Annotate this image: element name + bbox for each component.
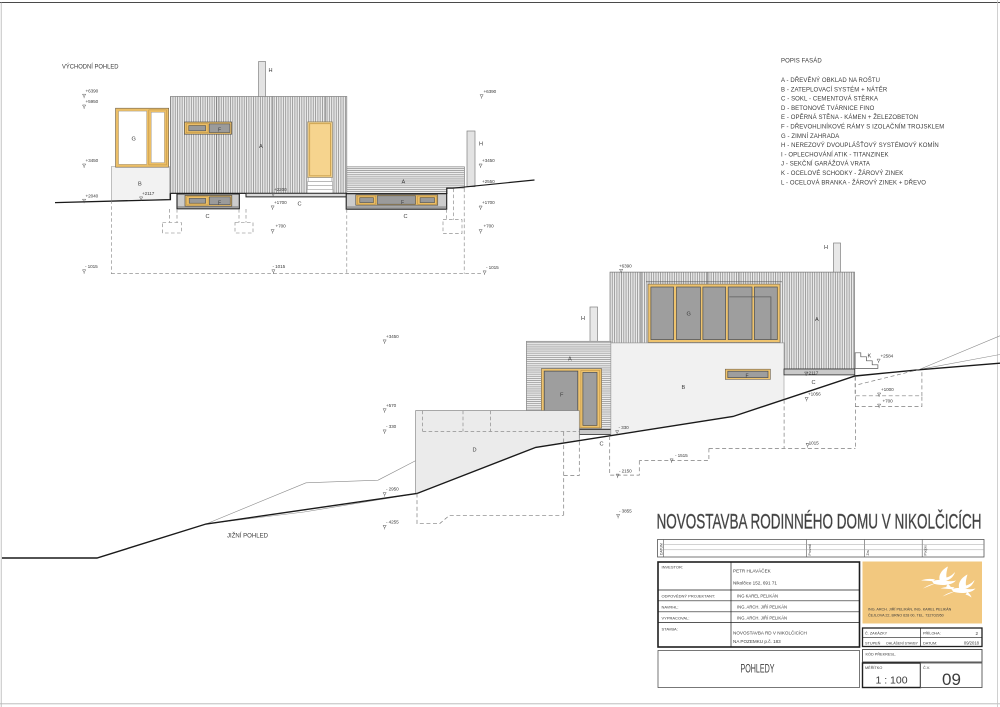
svg-text:- 1515: - 1515 (675, 453, 688, 458)
svg-text:+3450: +3450 (482, 158, 495, 163)
svg-text:ING. ARCH. JIŘÍ PELIKÁN, ING.: ING. ARCH. JIŘÍ PELIKÁN, ING. KAREL PELI… (868, 607, 952, 612)
svg-text:Provedl: Provedl (808, 544, 812, 556)
svg-text:C: C (404, 214, 408, 220)
svg-text:+570: +570 (386, 403, 397, 408)
svg-text:K - OCELOVÉ SCHODKY - ŽÁROVÝ Z: K - OCELOVÉ SCHODKY - ŽÁROVÝ ZINEK (781, 169, 903, 177)
svg-text:Zm.: Zm. (866, 550, 870, 556)
svg-text:+1700: +1700 (274, 200, 287, 205)
svg-text:+2117: +2117 (806, 371, 819, 376)
svg-text:E - OPĚRNÁ STĚNA - KÁMEN + ŽEL: E - OPĚRNÁ STĚNA - KÁMEN + ŽELEZOBETON (781, 113, 918, 121)
svg-text:A - DŘEVĚNÝ OBKLAD NA ROŠTU: A - DŘEVĚNÝ OBKLAD NA ROŠTU (781, 76, 880, 84)
svg-text:+3450: +3450 (386, 334, 399, 339)
svg-text:A: A (402, 180, 406, 186)
svg-text:- 2150: - 2150 (619, 468, 632, 473)
svg-text:ING. ARCH. JIŘÍ PELIKÁN: ING. ARCH. JIŘÍ PELIKÁN (737, 605, 787, 610)
svg-text:VÝCHODNÍ POHLED: VÝCHODNÍ POHLED (62, 64, 119, 71)
svg-text:NOVOSTAVBA RD V NIKOLČICÍCH: NOVOSTAVBA RD V NIKOLČICÍCH (733, 630, 807, 636)
svg-text:DATUM:: DATUM: (923, 641, 937, 645)
svg-text:D: D (473, 448, 477, 454)
svg-text:G: G (687, 312, 691, 318)
svg-text:- 1015: - 1015 (273, 264, 286, 269)
svg-text:- 1015: - 1015 (806, 441, 819, 446)
svg-text:OHLÁŠENÍ STAVBY: OHLÁŠENÍ STAVBY (886, 640, 919, 645)
svg-text:F - DŘEVOHLINÍKOVÉ RÁMY S IZOL: F - DŘEVOHLINÍKOVÉ RÁMY S IZOLAČNÍM TROJ… (781, 123, 944, 131)
svg-text:+700: +700 (883, 398, 894, 403)
svg-text:Podpis: Podpis (924, 545, 928, 556)
svg-text:+700: +700 (484, 224, 495, 229)
svg-text:+1000: +1000 (881, 387, 894, 392)
svg-text:- 1015: - 1015 (486, 265, 499, 270)
svg-text:+2584: +2584 (881, 353, 894, 358)
svg-text:F: F (746, 373, 749, 379)
svg-text:H: H (479, 142, 483, 148)
svg-text:- 2950: - 2950 (386, 487, 399, 492)
svg-text:+2117: +2117 (142, 191, 155, 196)
svg-text:J - SEKČNÍ GARÁŽOVÁ VRATA: J - SEKČNÍ GARÁŽOVÁ VRATA (781, 160, 870, 168)
svg-text:G: G (132, 137, 136, 143)
svg-text:- 330: - 330 (386, 424, 397, 429)
svg-text:1 : 100: 1 : 100 (875, 675, 907, 687)
svg-text:+6390: +6390 (484, 89, 497, 94)
svg-text:I - OPLECHOVÁNÍ ATIK - TITANZI: I - OPLECHOVÁNÍ ATIK - TITANZINEK (781, 151, 889, 158)
svg-text:+2040: +2040 (86, 193, 99, 198)
svg-text:09: 09 (942, 670, 961, 689)
svg-text:C: C (206, 214, 210, 220)
svg-text:MĚŘÍTKO: MĚŘÍTKO (865, 665, 882, 670)
svg-text:2: 2 (975, 631, 978, 636)
svg-text:B - ZATEPLOVACÍ SYSTÉM + NÁTĚR: B - ZATEPLOVACÍ SYSTÉM + NÁTĚR (781, 85, 888, 93)
svg-text:STUPEŇ: STUPEŇ (865, 640, 881, 645)
svg-text:Č.V.: Č.V. (923, 665, 930, 670)
svg-text:+3450: +3450 (86, 158, 99, 163)
svg-text:+700: +700 (276, 224, 287, 229)
svg-text:KÓD PŘEKRESL.: KÓD PŘEKRESL. (866, 652, 897, 657)
svg-text:09/2018: 09/2018 (964, 640, 980, 645)
svg-text:K: K (868, 354, 872, 360)
svg-text:H - NEREZOVÝ DVOUPLÁŠŤOVÝ SYST: H - NEREZOVÝ DVOUPLÁŠŤOVÝ SYSTÉMOVÝ KOMÍ… (781, 141, 939, 149)
svg-text:NAVRHL:: NAVRHL: (662, 605, 679, 610)
svg-text:B: B (138, 182, 142, 188)
svg-text:ING. ARCH. JIŘÍ PELIKÁN: ING. ARCH. JIŘÍ PELIKÁN (737, 616, 787, 621)
svg-text:+6390: +6390 (86, 88, 99, 93)
svg-text:POPIS FASÁD: POPIS FASÁD (781, 58, 822, 65)
svg-text:PŘÍLOHA:: PŘÍLOHA: (923, 630, 941, 635)
svg-text:DATUM: DATUM (660, 543, 664, 555)
svg-text:ING KAREL PELIKÁN: ING KAREL PELIKÁN (737, 594, 778, 599)
svg-text:- 330: - 330 (619, 425, 630, 430)
svg-text:- 3855: - 3855 (619, 509, 632, 514)
svg-text:VYPRACOVAL:: VYPRACOVAL: (662, 616, 690, 621)
svg-text:H: H (269, 68, 273, 74)
svg-text:C: C (600, 442, 604, 448)
svg-text:G - ZIMNÍ ZAHRADA: G - ZIMNÍ ZAHRADA (781, 133, 839, 140)
svg-text:ODPOVĚDNÝ PROJEKTANT:: ODPOVĚDNÝ PROJEKTANT: (662, 594, 716, 599)
svg-text:+1056: +1056 (808, 392, 821, 397)
svg-text:+1700: +1700 (482, 200, 495, 205)
svg-text:L - OCELOVÁ BRANKA - ŽÁROVÝ ZI: L - OCELOVÁ BRANKA - ŽÁROVÝ ZINEK + DŘEV… (781, 178, 926, 186)
svg-text:B: B (682, 385, 686, 391)
svg-text:A: A (815, 317, 819, 323)
svg-text:JIŽNÍ POHLED: JIŽNÍ POHLED (227, 532, 269, 540)
svg-text:INVESTOR:: INVESTOR: (662, 565, 684, 570)
svg-text:F: F (401, 200, 404, 206)
svg-text:A: A (259, 144, 263, 150)
svg-text:- 4255: - 4255 (386, 520, 399, 525)
svg-text:+2200: +2200 (274, 187, 287, 192)
svg-text:D - BETONOVÉ TVÁRNICE FINO: D - BETONOVÉ TVÁRNICE FINO (781, 105, 875, 112)
svg-text:PETR HLAVÁČEK: PETR HLAVÁČEK (733, 568, 772, 574)
svg-text:F: F (560, 393, 564, 399)
svg-text:H: H (824, 245, 828, 251)
svg-text:ČEJLOVA 22, BRNO 628 00, TEL.: ČEJLOVA 22, BRNO 628 00, TEL. 732702950 (868, 613, 944, 618)
svg-text:C - SOKL - CEMENTOVÁ STĚRKA: C - SOKL - CEMENTOVÁ STĚRKA (781, 95, 878, 103)
svg-text:Č. ZAKÁZKY: Č. ZAKÁZKY (865, 630, 888, 635)
svg-text:- 1015: - 1015 (85, 264, 98, 269)
svg-text:F: F (218, 200, 221, 206)
svg-text:+5950: +5950 (86, 99, 99, 104)
svg-text:+2550: +2550 (482, 179, 495, 184)
svg-text:Nikolčice 152, 691 71: Nikolčice 152, 691 71 (733, 581, 777, 586)
svg-text:POHLEDY: POHLEDY (741, 664, 775, 676)
svg-text:C: C (298, 202, 302, 208)
svg-text:C: C (812, 380, 816, 386)
svg-text:+6390: +6390 (619, 264, 632, 269)
svg-text:F: F (218, 128, 221, 134)
svg-text:STAVBA:: STAVBA: (662, 627, 678, 632)
svg-text:NA POZEMKU p.č. 183: NA POZEMKU p.č. 183 (733, 639, 781, 644)
svg-text:H: H (581, 316, 585, 322)
svg-text:NOVOSTAVBA RODINNÉHO DOMU V NI: NOVOSTAVBA RODINNÉHO DOMU V NIKOLČICÍCH (657, 509, 982, 534)
svg-text:A: A (568, 357, 572, 363)
